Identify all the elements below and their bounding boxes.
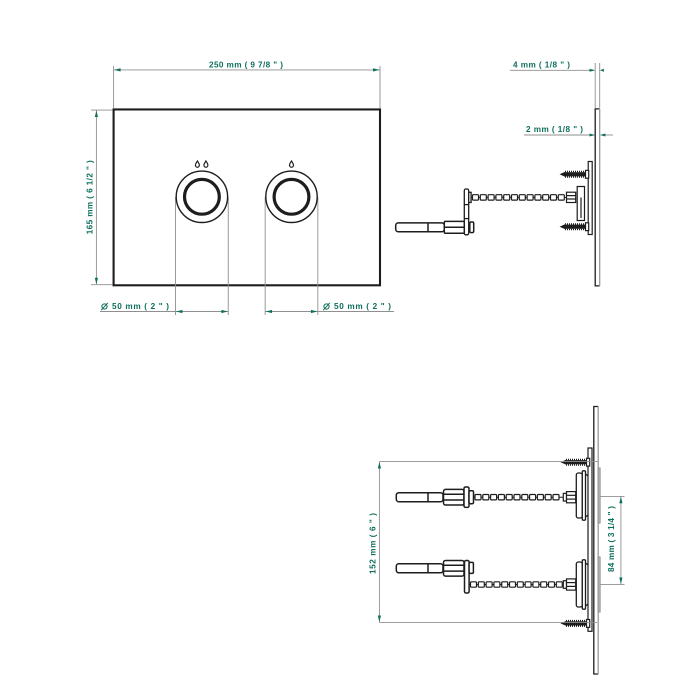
svg-text:165 mm ( 6 1/2 " ): 165 mm ( 6 1/2 " ) — [86, 160, 95, 234]
svg-text:84 mm ( 3 1/4 " ): 84 mm ( 3 1/4 " ) — [607, 506, 616, 572]
svg-text:4 mm ( 1/8 " ): 4 mm ( 1/8 " ) — [513, 61, 570, 70]
svg-text:50 mm ( 2 " ): 50 mm ( 2 " ) — [112, 302, 169, 311]
svg-text:250 mm ( 9 7/8 " ): 250 mm ( 9 7/8 " ) — [209, 61, 283, 70]
svg-text:152 mm ( 6 " ): 152 mm ( 6 " ) — [369, 513, 378, 574]
svg-text:2 mm ( 1/8 " ): 2 mm ( 1/8 " ) — [526, 125, 583, 134]
svg-text:50 mm ( 2 " ): 50 mm ( 2 " ) — [334, 302, 391, 311]
